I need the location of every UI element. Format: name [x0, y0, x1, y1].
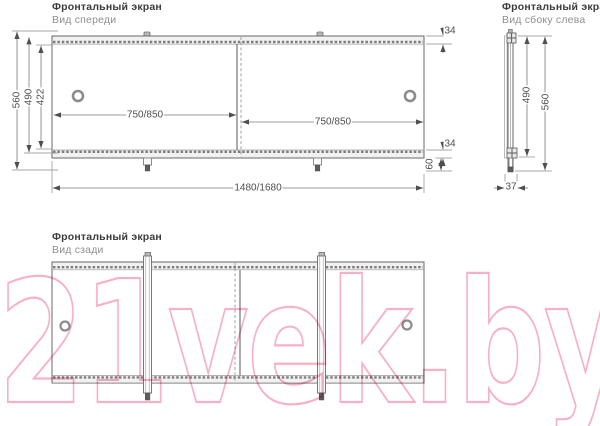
dim-label-front-foot: 60: [425, 157, 436, 170]
dim-label-side-height-body: 490: [522, 86, 533, 105]
front-view-subtitle: Вид спереди: [52, 14, 116, 26]
dim-label-front-height-body: 490: [24, 88, 35, 107]
rear-rail-right: [318, 256, 326, 400]
front-panel-outline: [52, 36, 424, 158]
side-view-subtitle: Вид сбоку слева: [502, 14, 585, 26]
rear-rail-left: [144, 256, 152, 400]
rear-panel-outline: [52, 262, 424, 383]
side-view-dimension-lines: [494, 36, 552, 192]
rear-view-subtitle: Вид сзади: [52, 244, 104, 256]
dim-label-side-depth: 37: [504, 182, 517, 193]
side-view-title: Фронтальный экран: [502, 1, 600, 13]
adjustable-foot-left: [144, 158, 152, 171]
side-top-rail-section: [507, 33, 516, 43]
side-foot: [508, 158, 513, 172]
dim-label-front-panel-right: 750/850: [314, 117, 352, 128]
front-view-drawing: [52, 32, 424, 171]
dim-label-front-height-total: 560: [12, 91, 23, 110]
dim-label-side-height-total: 560: [541, 93, 552, 112]
dim-label-front-rail-bottom: 34: [443, 139, 456, 150]
adjustable-foot-right: [314, 158, 322, 171]
dim-label-front-panel-left: 750/850: [126, 110, 164, 121]
side-view-drawing: [505, 30, 518, 173]
front-view-title: Фронтальный экран: [52, 1, 162, 13]
rear-view-drawing: [52, 253, 424, 401]
side-bottom-rail-section: [507, 148, 517, 158]
bath-screen-technical-drawing: Фронтальный экран Вид спереди Фронтальны…: [0, 0, 600, 426]
dim-label-front-height-inner: 422: [36, 88, 47, 107]
dim-label-front-width-total: 1480/1680: [233, 183, 282, 194]
rear-view-title: Фронтальный экран: [52, 231, 162, 243]
drawing-linework: [0, 0, 600, 426]
side-top-knob: [509, 30, 513, 34]
dim-label-front-rail-top: 34: [443, 26, 456, 37]
